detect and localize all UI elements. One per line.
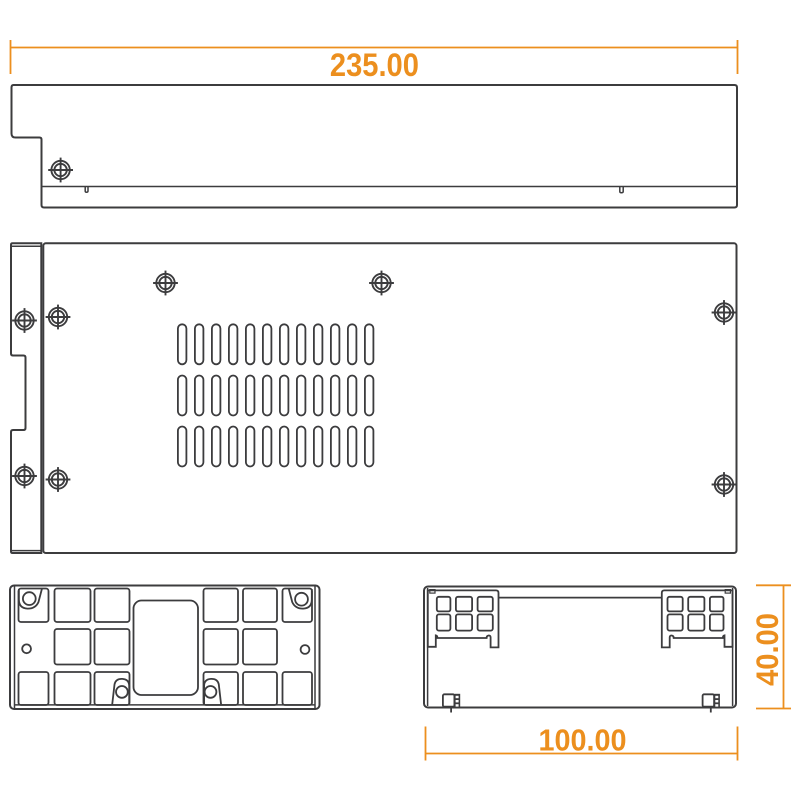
svg-text:235.00: 235.00: [330, 47, 419, 83]
svg-text:100.00: 100.00: [539, 723, 627, 758]
svg-text:40.00: 40.00: [749, 613, 785, 686]
